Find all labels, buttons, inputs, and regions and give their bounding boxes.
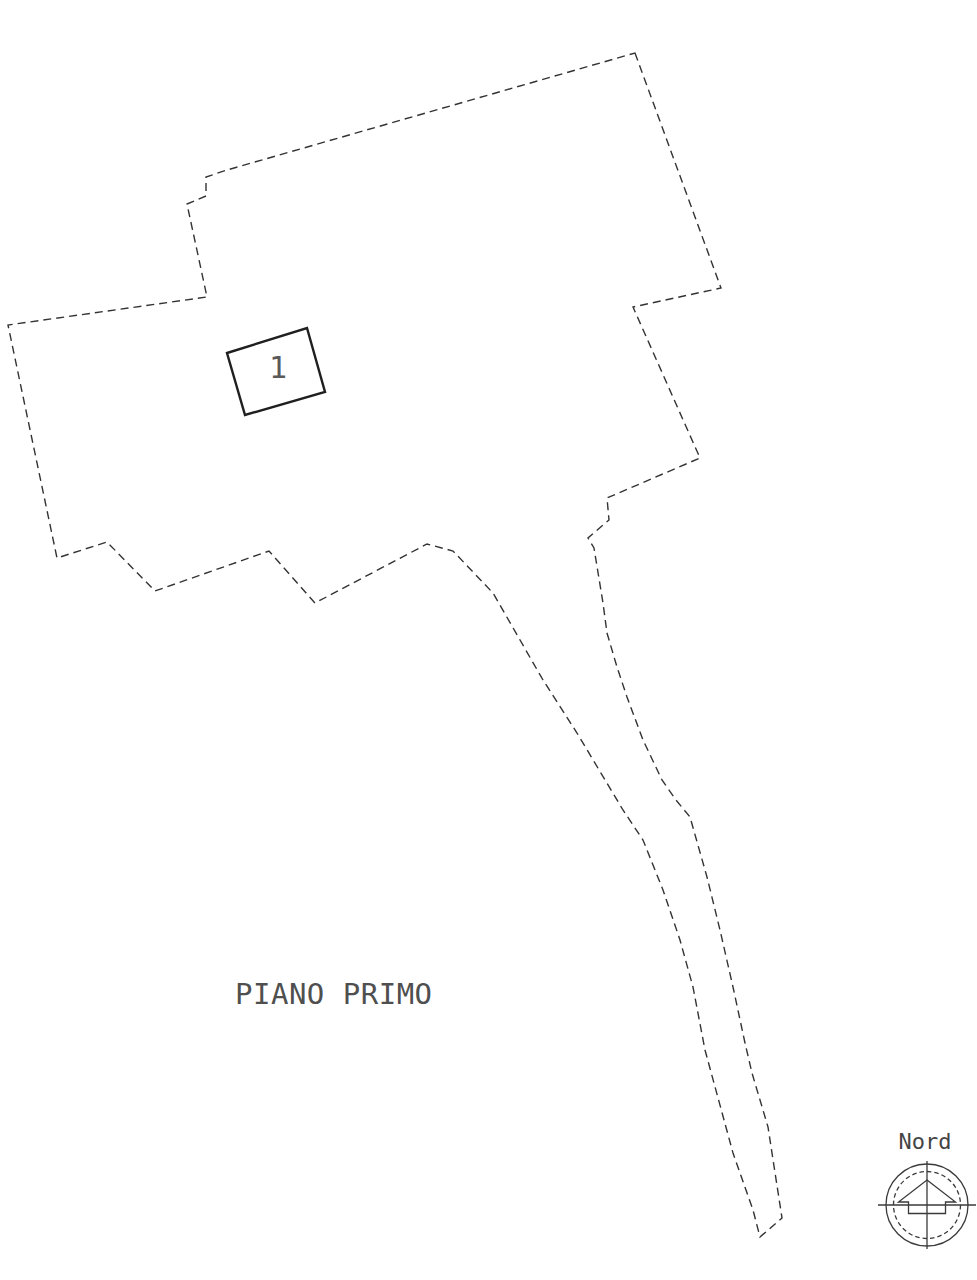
north-compass: Nord [878,1129,976,1249]
north-label: Nord [899,1129,952,1154]
floor-plan-canvas: 1 PIANO PRIMO Nord [0,0,977,1280]
floor-plan-drawing: 1 PIANO PRIMO Nord [0,0,977,1280]
floor-title: PIANO PRIMO [235,977,433,1011]
unit-1-label: 1 [269,350,287,385]
parcel-boundary-outline [8,53,782,1237]
